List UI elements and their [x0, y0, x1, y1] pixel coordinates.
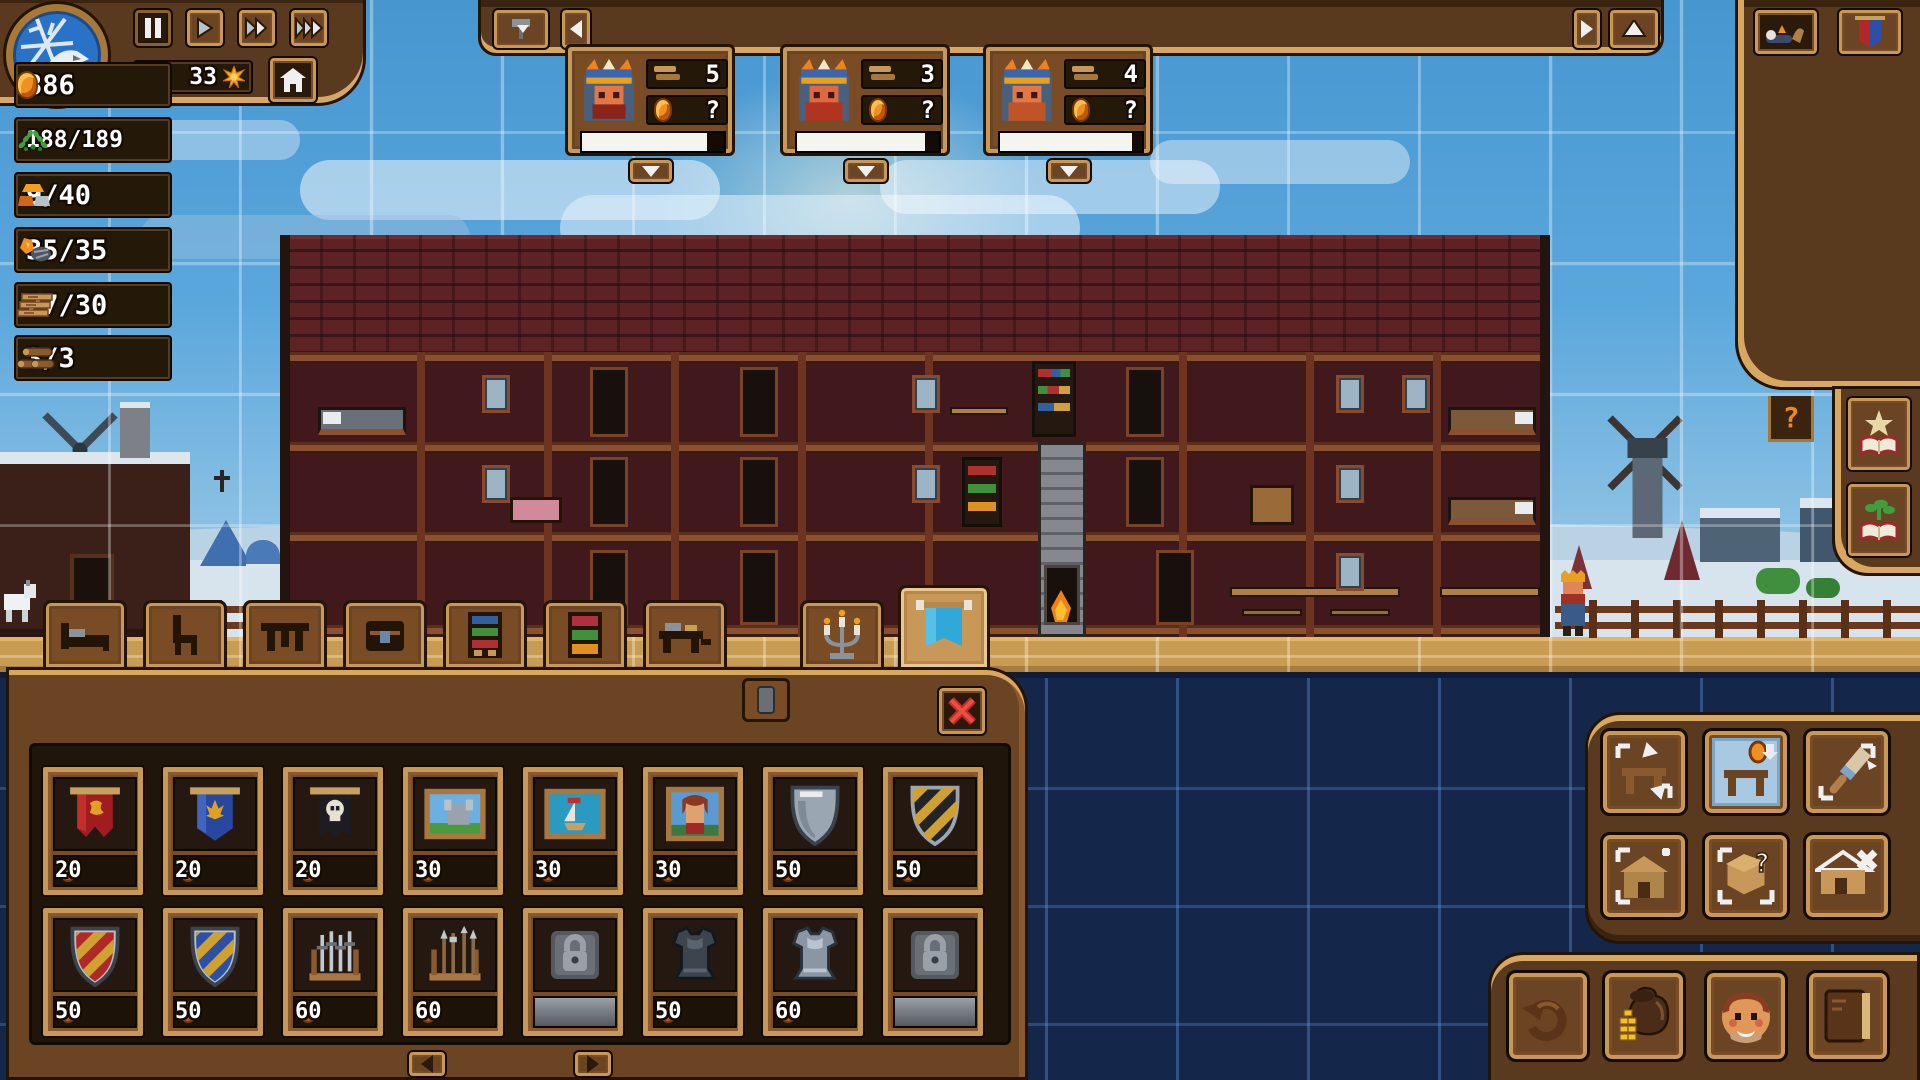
toolbar-forward-button[interactable] — [1572, 8, 1602, 50]
arrow-right-icon — [1581, 20, 1593, 38]
satisfaction-bar — [580, 131, 726, 153]
add-room-button[interactable] — [1600, 832, 1688, 920]
fastest-icon — [294, 17, 324, 39]
price-tag: 60 — [293, 996, 377, 1028]
arrow-left-icon — [570, 20, 582, 38]
character-face-icon — [1717, 987, 1775, 1045]
bush — [1806, 578, 1840, 598]
shop-item-banner-red-lion[interactable]: 20 — [41, 765, 145, 897]
plant-book-icon — [1857, 494, 1901, 546]
beds-icon — [1072, 66, 1098, 82]
beds-value: 5 — [706, 60, 720, 88]
price-tag: 50 — [773, 855, 857, 887]
bed[interactable] — [1448, 407, 1536, 435]
long-table[interactable] — [1230, 587, 1400, 597]
door — [740, 457, 778, 527]
price-value: 50 — [895, 857, 922, 885]
resource-logs: 3/3 — [14, 335, 172, 381]
undo-button[interactable] — [1506, 970, 1590, 1062]
ore-icon — [16, 236, 52, 264]
logs-icon — [16, 344, 56, 372]
hearth-fire — [1044, 565, 1080, 625]
shop-item-locked — [521, 906, 625, 1038]
window — [482, 375, 510, 413]
price-value: 30 — [535, 857, 562, 885]
speed-pause-button[interactable] — [133, 8, 173, 48]
panel-handle[interactable] — [742, 678, 790, 722]
heraldry-button[interactable] — [1837, 8, 1903, 56]
move-furniture-button[interactable] — [1600, 728, 1688, 816]
laurel-icon — [16, 127, 50, 153]
quest-book-button[interactable] — [1846, 396, 1912, 472]
price-tag: 60 — [413, 996, 497, 1028]
king-avatar — [580, 59, 638, 125]
windmill-right — [1590, 408, 1700, 538]
price-value: 60 — [295, 998, 322, 1026]
price-value: 50 — [655, 998, 682, 1026]
coin-icon — [654, 98, 672, 122]
gold-value: ? — [706, 96, 720, 124]
banner-red-lion-icon — [53, 777, 137, 851]
sleep-icon — [1764, 17, 1808, 47]
tab-chest[interactable] — [343, 600, 427, 667]
beds-value: 3 — [921, 60, 935, 88]
price-value: 20 — [175, 857, 202, 885]
shop-item-shield-red-gold[interactable]: 50 — [41, 906, 145, 1038]
pantry-shelf[interactable] — [962, 457, 1002, 527]
chevron-down-icon — [1060, 166, 1078, 177]
window — [1336, 553, 1364, 591]
shop-item-shield-black-gold[interactable]: 50 — [881, 765, 985, 897]
home-icon — [280, 68, 306, 92]
journal-icon — [1822, 987, 1874, 1045]
shop-item-locked — [881, 906, 985, 1038]
price-tag: 60 — [773, 996, 857, 1028]
gold-value: ? — [921, 96, 935, 124]
padlock-icon — [533, 918, 617, 992]
tab-bed[interactable] — [43, 600, 127, 667]
beds-icon — [654, 66, 680, 82]
price-value: 20 — [55, 857, 82, 885]
resource-gold-bars: 9/40 — [14, 172, 172, 218]
price-value: 50 — [775, 857, 802, 885]
fast-forward-icon — [244, 17, 270, 39]
grave-cross — [214, 470, 230, 492]
armor-steel-icon — [773, 918, 857, 992]
decoration-shop-panel: 20 20 20 30 30 30 50 50 — [6, 667, 1028, 1080]
price-tag: 30 — [653, 855, 737, 887]
remove-room-button[interactable] — [1803, 832, 1891, 920]
beds-value: 4 — [1124, 60, 1138, 88]
cottage — [1700, 508, 1780, 562]
window — [1402, 375, 1430, 413]
price-value: 30 — [655, 857, 682, 885]
undo-icon — [1520, 988, 1576, 1044]
bed[interactable] — [1448, 497, 1536, 525]
painting-castle-icon — [413, 777, 497, 851]
tab-desk[interactable] — [643, 600, 727, 667]
day-value: 33 — [189, 64, 217, 90]
tree-red — [1664, 520, 1700, 580]
finances-button[interactable] — [1602, 970, 1686, 1062]
shield-red-gold-icon — [53, 918, 137, 992]
beds-stat: 3 — [861, 59, 943, 89]
chevron-down-icon — [642, 166, 660, 177]
window — [912, 375, 940, 413]
shop-item-painting-portrait[interactable]: 30 — [641, 765, 745, 897]
resource-planks: 27/30 — [14, 282, 172, 328]
door — [1126, 367, 1164, 437]
satisfaction-fill — [582, 133, 707, 151]
game-screen: 20 20 20 30 30 30 50 50 — [0, 0, 1920, 1080]
paint-brush-icon — [1815, 740, 1879, 804]
locked-bar — [533, 996, 617, 1028]
door — [590, 367, 628, 437]
window — [1336, 465, 1364, 503]
tavern-building[interactable] — [280, 235, 1550, 637]
shield-steel-icon — [773, 777, 857, 851]
gold-value: ? — [1124, 96, 1138, 124]
tool-hammer-button[interactable] — [492, 8, 550, 50]
shop-item-rack-swords[interactable]: 60 — [281, 906, 385, 1038]
tent — [200, 520, 252, 566]
shop-item-painting-ship[interactable]: 30 — [521, 765, 625, 897]
query-box-button[interactable]: ? — [1702, 832, 1790, 920]
gold-stat: ? — [646, 95, 728, 125]
king-dropdown-button[interactable] — [1046, 158, 1092, 184]
bed[interactable] — [318, 407, 406, 435]
beds-stat: 4 — [1064, 59, 1146, 89]
coin-icon — [16, 71, 38, 99]
painting-portrait-icon — [653, 777, 737, 851]
tab-table[interactable] — [243, 600, 327, 667]
coin-icon — [1072, 98, 1090, 122]
satisfaction-fill — [1000, 133, 1132, 151]
shield-black-gold-icon — [893, 777, 977, 851]
king-npc[interactable] — [1553, 570, 1593, 638]
heraldry-icon — [1853, 14, 1887, 50]
close-button[interactable] — [937, 686, 987, 736]
bush — [1756, 568, 1800, 594]
money-bag-icon — [1616, 986, 1672, 1046]
sun-icon — [223, 66, 245, 88]
price-tag: 30 — [413, 855, 497, 887]
handle-slot-icon — [757, 686, 775, 714]
shop-item-armor-dark[interactable]: 50 — [641, 906, 745, 1038]
king-panel[interactable]: 5 ? — [565, 44, 735, 156]
shop-item-armor-steel[interactable]: 60 — [761, 906, 865, 1038]
king-avatar — [795, 59, 853, 125]
price-value: 50 — [55, 998, 82, 1026]
long-table[interactable] — [1440, 587, 1540, 597]
coin-icon — [869, 98, 887, 122]
door — [740, 367, 778, 437]
pause-icon — [143, 18, 163, 38]
sell-furniture-icon — [1714, 740, 1778, 804]
gold-stat: ? — [861, 95, 943, 125]
cloud — [1150, 140, 1410, 184]
add-room-icon — [1612, 844, 1676, 908]
journal-button[interactable] — [1806, 970, 1890, 1062]
page-right-button[interactable] — [573, 1050, 613, 1078]
window — [912, 465, 940, 503]
chevron-down-icon — [517, 25, 529, 33]
shop-item-banner-blue-fleur[interactable]: 20 — [161, 765, 265, 897]
price-tag: 20 — [293, 855, 377, 887]
hint-label: ? — [1783, 401, 1800, 434]
window — [482, 465, 510, 503]
toolbar-collapse-button[interactable] — [1608, 8, 1660, 50]
fence-right — [1555, 600, 1920, 638]
shop-item-banner-black-skull[interactable]: 20 — [281, 765, 385, 897]
bookshelf[interactable] — [1032, 361, 1076, 437]
plant-book-button[interactable] — [1846, 482, 1912, 558]
beds-stat: 5 — [646, 59, 728, 89]
shop-item-shield-blue-gold[interactable]: 50 — [161, 906, 265, 1038]
king-avatar — [998, 59, 1056, 125]
sell-furniture-button[interactable] — [1702, 728, 1790, 816]
shop-item-rack-spears[interactable]: 60 — [401, 906, 505, 1038]
door — [1156, 550, 1194, 625]
locked-bar — [893, 996, 977, 1028]
tab-pantry[interactable] — [543, 600, 627, 667]
play-icon — [194, 17, 216, 39]
table[interactable] — [950, 407, 1008, 415]
svg-text:?: ? — [1754, 849, 1770, 879]
speed-play-button[interactable] — [185, 8, 225, 48]
ingots-icon — [16, 182, 52, 208]
rack-spears-icon — [413, 918, 497, 992]
padlock-icon — [893, 918, 977, 992]
satisfaction-bar — [795, 131, 941, 153]
tab-chair[interactable] — [143, 600, 227, 667]
speed-fastest-button[interactable] — [289, 8, 329, 48]
quest-book-icon — [1857, 408, 1901, 460]
speed-fast-button[interactable] — [237, 8, 277, 48]
bench[interactable] — [1242, 609, 1302, 616]
shop-item-painting-castle[interactable]: 30 — [401, 765, 505, 897]
close-icon — [947, 696, 977, 726]
character-button[interactable] — [1704, 970, 1788, 1062]
resource-reputation: 188/189 — [14, 117, 172, 163]
satisfaction-fill — [797, 133, 925, 151]
move-furniture-icon — [1612, 740, 1676, 804]
price-tag: 50 — [53, 996, 137, 1028]
king-dropdown-button[interactable] — [843, 158, 889, 184]
banner-black-skull-icon — [293, 777, 377, 851]
price-tag: 20 — [173, 855, 257, 887]
resource-gold: 886 — [14, 62, 172, 108]
window — [1336, 375, 1364, 413]
dresser[interactable] — [1250, 485, 1294, 525]
price-tag: 20 — [53, 855, 137, 887]
price-value: 60 — [775, 998, 802, 1026]
price-value: 20 — [295, 857, 322, 885]
table-cloth[interactable] — [510, 497, 562, 523]
bench[interactable] — [1330, 609, 1390, 616]
tab-candelabra[interactable] — [800, 600, 884, 667]
arrow-right-icon — [587, 1055, 599, 1073]
beds-icon — [869, 66, 895, 82]
page-left-button[interactable] — [407, 1050, 447, 1078]
tab-banner[interactable] — [898, 585, 990, 667]
query-box-icon: ? — [1714, 844, 1778, 908]
price-tag: 30 — [533, 855, 617, 887]
chevron-down-icon — [857, 166, 875, 177]
door — [1126, 457, 1164, 527]
gold-stat: ? — [1064, 95, 1146, 125]
planks-icon — [16, 292, 54, 318]
king-panel[interactable]: 4 ? — [983, 44, 1153, 156]
price-tag: 50 — [893, 855, 977, 887]
collapse-icon — [1619, 20, 1649, 38]
shield-blue-gold-icon — [173, 918, 257, 992]
hut — [246, 540, 280, 568]
arrow-left-icon — [421, 1055, 433, 1073]
resource-ore: 35/35 — [14, 227, 172, 273]
door — [590, 457, 628, 527]
sleep-button[interactable] — [1753, 8, 1819, 56]
king-panel[interactable]: 3 ? — [780, 44, 950, 156]
furniture-tabs — [0, 585, 1030, 667]
remove-room-icon — [1815, 844, 1879, 908]
banner-blue-fleur-icon — [173, 777, 257, 851]
armor-dark-icon — [653, 918, 737, 992]
price-value: 50 — [175, 998, 202, 1026]
painting-ship-icon — [533, 777, 617, 851]
paint-furniture-button[interactable] — [1803, 728, 1891, 816]
price-value: 60 — [415, 998, 442, 1026]
hint-tab[interactable]: ? — [1768, 396, 1814, 442]
rack-swords-icon — [293, 918, 377, 992]
home-button[interactable] — [268, 56, 318, 104]
tab-bookshelf[interactable] — [443, 600, 527, 667]
price-value: 30 — [415, 857, 442, 885]
resource-panel — [1735, 0, 1920, 390]
shop-item-shield-steel[interactable]: 50 — [761, 765, 865, 897]
price-tag: 50 — [653, 996, 737, 1028]
satisfaction-bar — [998, 131, 1144, 153]
price-tag: 50 — [173, 996, 257, 1028]
king-dropdown-button[interactable] — [628, 158, 674, 184]
